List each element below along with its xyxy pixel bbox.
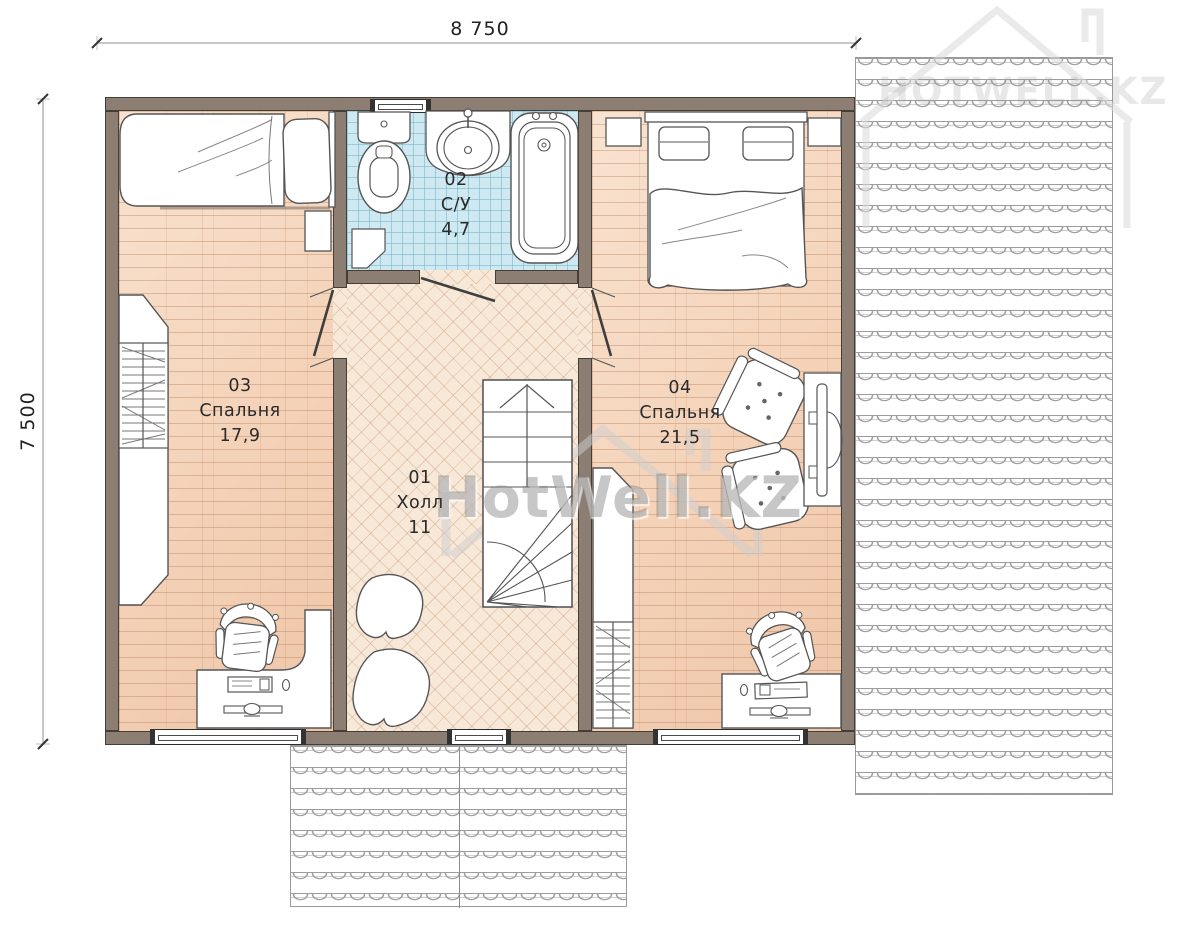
desk-04	[722, 674, 841, 728]
tv-unit	[804, 373, 842, 506]
room-number: 04	[615, 376, 745, 401]
room-area: 4,7	[406, 218, 506, 243]
pouffe-top	[356, 574, 422, 638]
room-area: 11	[365, 516, 475, 541]
watermark-text-top-right: HOTWELL.KZ	[878, 70, 1138, 113]
door-bedroom-04	[592, 288, 615, 367]
single-bed	[120, 112, 335, 208]
room-number: 01	[365, 466, 475, 491]
room-label-bedroom-03: 03 Спальня 17,9	[175, 374, 305, 449]
room-area: 17,9	[175, 424, 305, 449]
dimension-width: 8 750	[400, 18, 560, 40]
nightstand-04-right	[808, 118, 841, 146]
watermark-house-top-right	[862, 10, 1131, 228]
room-number: 03	[175, 374, 305, 399]
room-label-hall: 01 Холл 11	[365, 466, 475, 541]
nightstand-04-left	[606, 118, 641, 146]
bathtub	[511, 113, 578, 264]
dimension-height: 7 500	[17, 371, 39, 471]
watermark-text-center: HotWell.KZ	[433, 465, 773, 531]
nightstand-03	[305, 211, 331, 251]
pouffe-bottom	[353, 649, 430, 726]
room-label-bathroom: 02 С/У 4,7	[406, 168, 506, 243]
room-name: С/У	[406, 193, 506, 218]
double-bed	[645, 112, 807, 290]
room-label-bedroom-04: 04 Спальня 21,5	[615, 376, 745, 451]
toilet	[358, 112, 410, 213]
room-area: 21,5	[615, 426, 745, 451]
room-name: Холл	[365, 491, 475, 516]
bath-corner-unit	[352, 229, 385, 268]
floor-plan-canvas: HOTWELL.KZ HotWell.KZ 02 С/У 4,7 03 Спал…	[0, 0, 1200, 950]
door-bathroom	[421, 278, 495, 301]
door-bedroom-03	[310, 288, 333, 367]
sink	[426, 109, 510, 176]
room-name: Спальня	[175, 399, 305, 424]
room-number: 02	[406, 168, 506, 193]
wardrobe-03	[119, 295, 168, 605]
room-name: Спальня	[615, 401, 745, 426]
office-chair-03	[211, 599, 282, 673]
